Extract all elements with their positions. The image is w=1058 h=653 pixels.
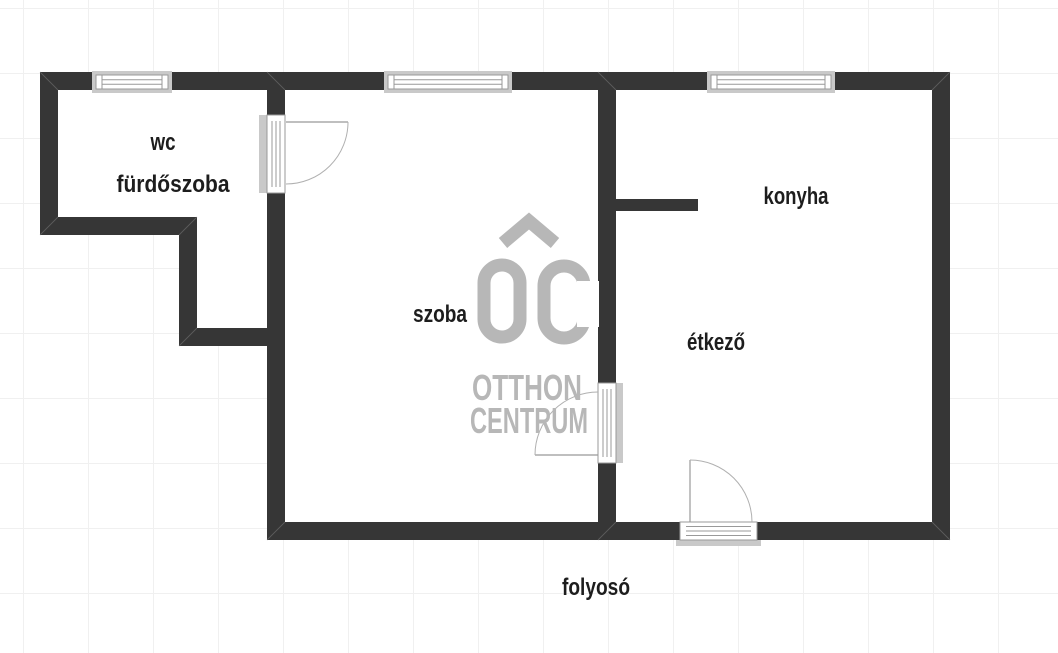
wall-right-exterior bbox=[932, 72, 950, 540]
floorplan-drawing: OTTHON CENTRUM wc fürdőszoba szoba konyh… bbox=[0, 0, 1058, 653]
logo-centrum-text: CENTRUM bbox=[470, 400, 588, 441]
window-konyha bbox=[707, 71, 835, 93]
label-folyoso: folyosó bbox=[562, 574, 630, 601]
label-konyha: konyha bbox=[764, 183, 829, 210]
wall-kitchen-partition-stub bbox=[616, 199, 698, 211]
label-szoba: szoba bbox=[413, 301, 468, 328]
wall-bathroom-jog-vertical bbox=[179, 217, 197, 346]
label-furdoszoba: fürdőszoba bbox=[117, 171, 231, 198]
wall-left-exterior bbox=[40, 72, 58, 235]
wall-bottom-exterior bbox=[267, 522, 950, 540]
label-wc: wc bbox=[150, 129, 176, 156]
logo-c-gap bbox=[577, 281, 599, 327]
wall-center-divider bbox=[598, 72, 616, 540]
label-etkezo: étkező bbox=[687, 329, 745, 356]
window-szoba bbox=[384, 71, 512, 93]
wall-bathroom-bottom bbox=[40, 217, 197, 235]
floorplan-page: OTTHON CENTRUM wc fürdőszoba szoba konyh… bbox=[0, 0, 1058, 653]
window-bathroom bbox=[92, 71, 172, 93]
